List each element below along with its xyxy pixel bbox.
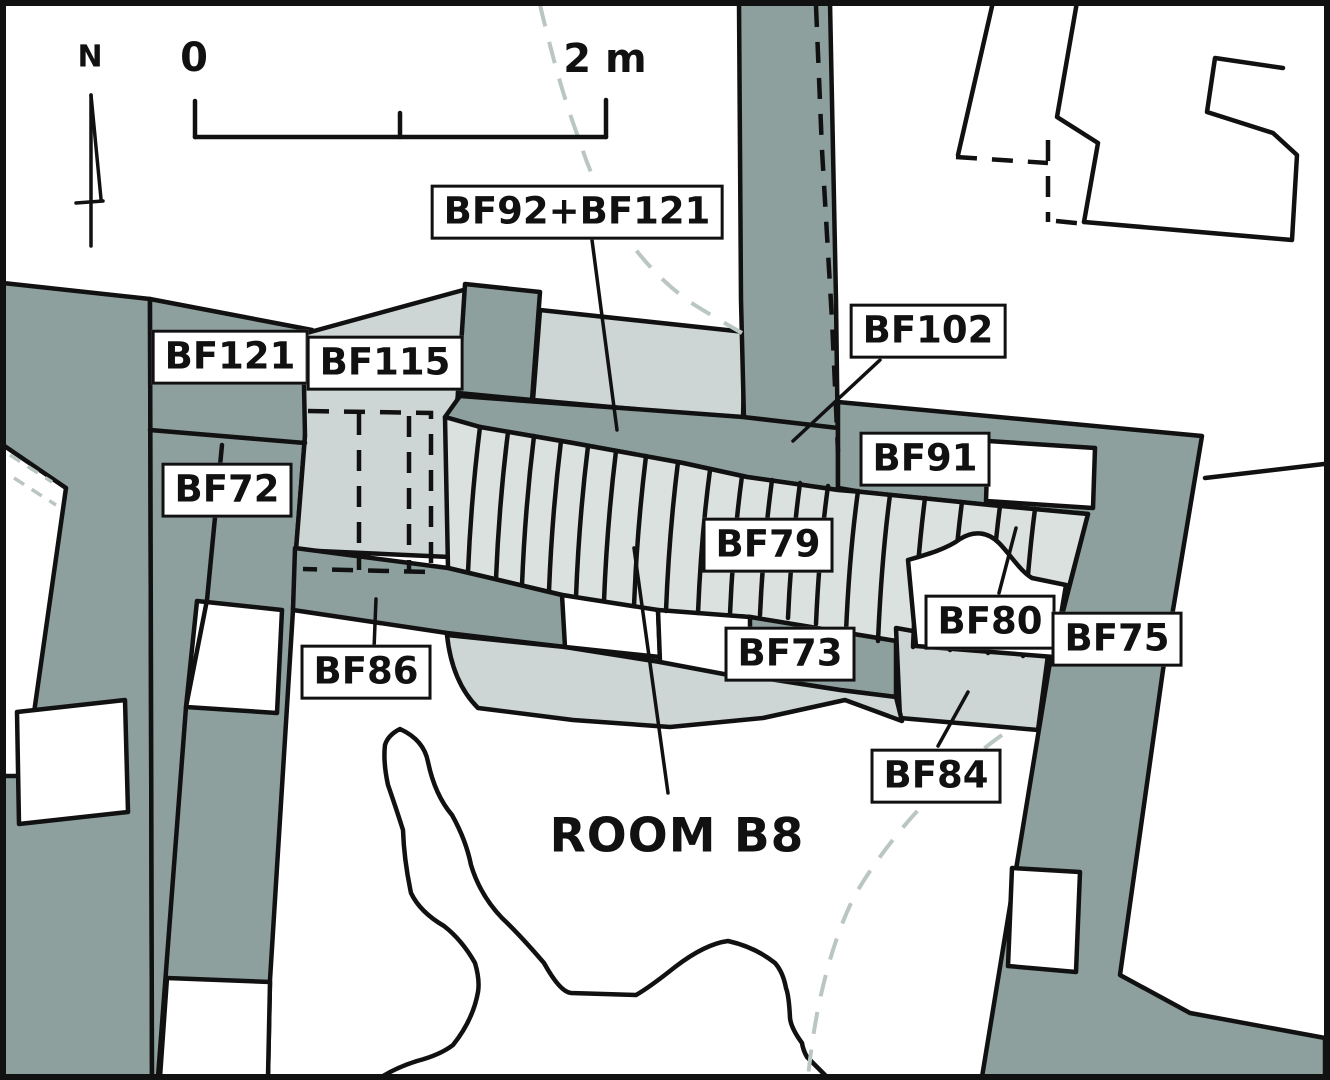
feature-label-bf79: BF79 (703, 518, 834, 573)
opening-mid-rect (186, 601, 282, 713)
leader-bf86 (374, 599, 376, 649)
feature-label-bf84: BF84 (871, 749, 1002, 804)
wall-central-vertical (739, 2, 838, 460)
pit-outline (380, 729, 828, 1078)
feature-label-bf73: BF73 (725, 627, 856, 682)
feature-label-bf115: BF115 (307, 336, 464, 391)
opening-bf75-wall (1008, 868, 1080, 972)
excavation-plan: N 0 2 m BF92+BF121 BF121 BF115 BF72 BF10… (0, 0, 1330, 1080)
feature-label-bf102: BF102 (850, 304, 1007, 359)
scale-bar (195, 100, 606, 137)
feature-label-bf75: BF75 (1052, 612, 1183, 667)
feature-label-bf121: BF121 (152, 330, 309, 385)
dashed-topright-h2 (1056, 221, 1086, 224)
north-arrow-icon (76, 95, 103, 246)
north-label: N (77, 40, 102, 75)
wall-polygons (3, 2, 1325, 1077)
site-plan-drawing (0, 0, 1330, 1080)
opening-southwest-rect (160, 978, 270, 1077)
northeast-structures (958, 2, 1324, 478)
scale-end-label: 2 m (563, 36, 646, 82)
scale-start-label: 0 (180, 35, 208, 81)
opening-bf91-wall (986, 441, 1095, 508)
feature-label-bf92-bf121: BF92+BF121 (431, 185, 724, 240)
room-title: ROOM B8 (550, 809, 805, 864)
feature-label-bf72: BF72 (162, 463, 293, 518)
feature-label-bf86: BF86 (301, 645, 432, 700)
feature-label-bf80: BF80 (925, 595, 1056, 650)
floor-bf115 (296, 289, 467, 557)
wall-block-bf92 (458, 284, 540, 400)
dashed-topright-h (956, 157, 1048, 163)
feature-label-bf91: BF91 (860, 432, 991, 487)
opening-west-rect (17, 700, 128, 824)
